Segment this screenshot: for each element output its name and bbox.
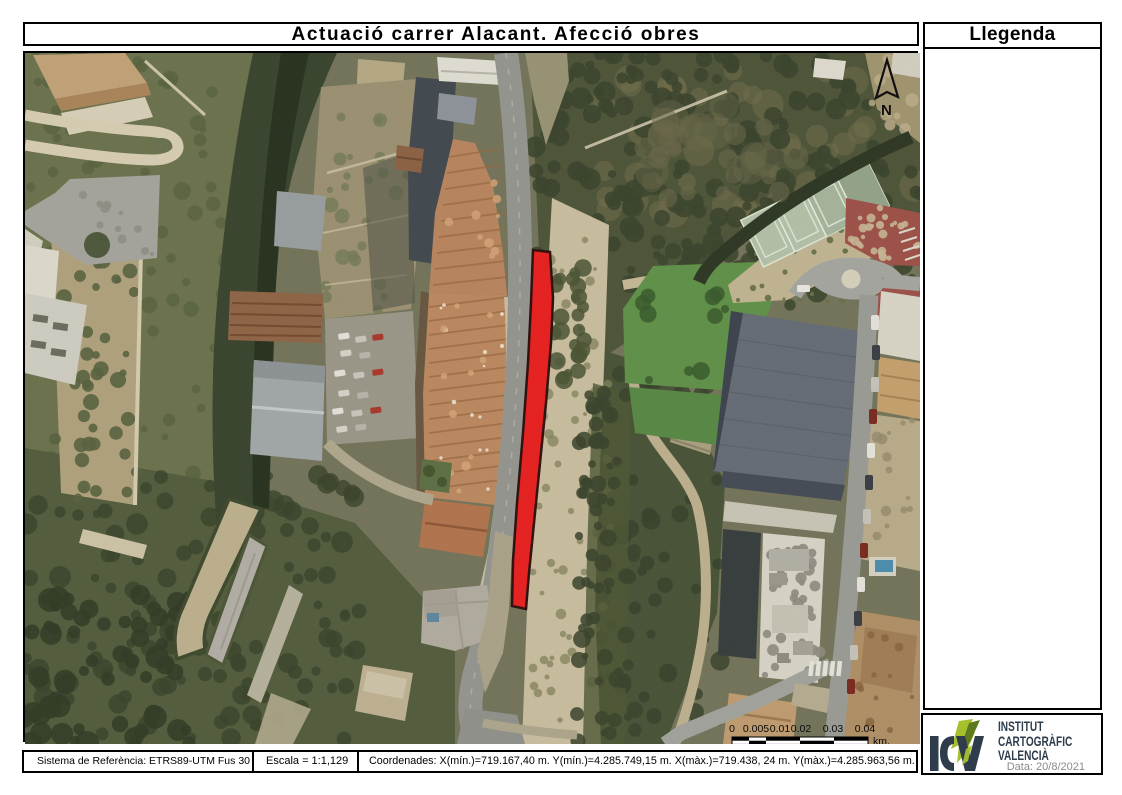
svg-text:0.03: 0.03	[823, 723, 844, 735]
svg-text:0.005: 0.005	[743, 723, 769, 735]
svg-text:0.02: 0.02	[791, 723, 812, 735]
svg-text:0.01: 0.01	[770, 723, 791, 735]
svg-text:0: 0	[729, 723, 735, 735]
svg-text:km.: km.	[873, 736, 890, 745]
svg-text:N: N	[881, 102, 892, 119]
svg-text:0.04: 0.04	[855, 723, 876, 735]
